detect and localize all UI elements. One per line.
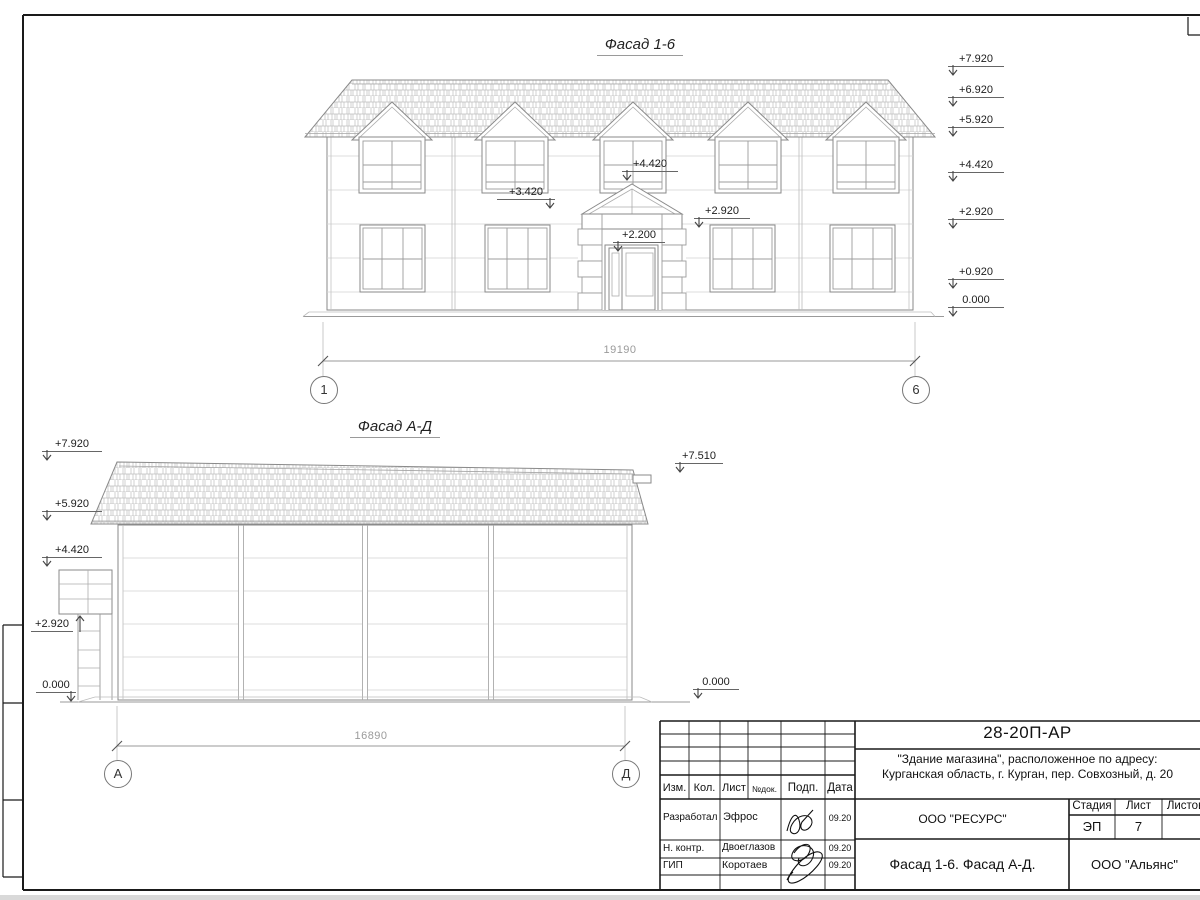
col-header-list: Лист	[720, 782, 748, 794]
col-header-data: Дата	[825, 782, 855, 794]
doc-number: 28-20П-АР	[856, 723, 1199, 743]
project-name-line2: Курганская область, г. Курган, пер. Совх…	[856, 767, 1199, 781]
col-header-ndok: №док.	[748, 784, 781, 794]
sheet-header: Лист	[1115, 800, 1162, 812]
facade-a-d-linework	[59, 462, 690, 760]
axis-bubble-1: 1	[310, 376, 338, 404]
elev-arrow-icon	[947, 126, 959, 138]
elev-mark: +5.920	[948, 114, 1004, 128]
elev-label: +2.920	[31, 618, 73, 632]
screen-edge	[0, 895, 1200, 900]
staff-name: Двоеглазов	[722, 842, 780, 853]
col-header-podp: Подп.	[781, 782, 825, 794]
dimension-19190: 19190	[560, 344, 680, 356]
axis-bubble-d: Д	[612, 760, 640, 788]
elev-mark: +7.510	[675, 450, 723, 464]
elev-mark: +2.200	[613, 229, 665, 243]
facade-a-d-title-text: Фасад А-Д	[350, 418, 440, 438]
axis-bubble-a: А	[104, 760, 132, 788]
elev-arrow-icon	[41, 510, 53, 522]
elev-arrow-icon	[947, 96, 959, 108]
elev-mark: +2.920	[31, 618, 73, 632]
elev-arrow-icon	[947, 65, 959, 77]
elev-mark: +4.420	[42, 544, 102, 558]
elev-arrow-icon	[947, 218, 959, 230]
sheet-number: 7	[1115, 815, 1162, 839]
signature-efros	[787, 810, 813, 834]
elev-arrow-icon	[621, 170, 633, 182]
axis-bubble-6: 6	[902, 376, 930, 404]
col-header-kol: Кол.	[689, 782, 720, 794]
contractor-org: ООО "Альянс"	[1069, 839, 1200, 890]
project-name-line1: "Здание магазина", расположенное по адре…	[856, 752, 1199, 766]
elev-arrow-icon	[41, 556, 53, 568]
elev-mark: +7.920	[42, 438, 102, 452]
elev-mark: +4.420	[948, 159, 1004, 173]
elev-arrow-icon	[544, 198, 556, 210]
staff-name: Коротаев	[722, 859, 780, 871]
staff-date: 09.20	[825, 843, 855, 853]
sheets-header: Листов	[1162, 800, 1200, 812]
elev-mark: +3.420	[497, 186, 555, 200]
stage-header: Стадия	[1069, 800, 1115, 812]
staff-role: Разработал	[663, 812, 719, 823]
facade-a-d-title: Фасад А-Д	[330, 418, 460, 435]
elev-mark: 0.000	[693, 676, 739, 690]
elev-mark: +6.920	[948, 84, 1004, 98]
facade-1-6-title: Фасад 1-6	[565, 36, 715, 53]
facade-1-6-linework	[303, 80, 944, 376]
elev-arrow-icon	[947, 171, 959, 183]
staff-role: ГИП	[663, 860, 719, 871]
col-header-izm: Изм.	[660, 782, 689, 794]
staff-role: Н. контр.	[663, 843, 719, 854]
elev-mark: 0.000	[948, 294, 1004, 308]
facade-1-6-title-text: Фасад 1-6	[597, 36, 683, 56]
elev-arrow-icon	[947, 278, 959, 290]
elev-arrow-icon	[692, 688, 704, 700]
signature-double	[787, 844, 822, 883]
sheet-title: Фасад 1-6. Фасад А-Д.	[856, 839, 1069, 890]
elev-arrow-icon	[41, 450, 53, 462]
elev-mark: +2.920	[948, 206, 1004, 220]
staff-date: 09.20	[825, 860, 855, 870]
dimension-16890: 16890	[321, 730, 421, 742]
stage-value: ЭП	[1069, 815, 1115, 839]
staff-date: 09.20	[825, 813, 855, 823]
elev-mark: +5.920	[42, 498, 102, 512]
elev-mark: +0.920	[948, 266, 1004, 280]
designer-org: ООО "РЕСУРС"	[856, 799, 1069, 839]
elev-mark: +2.920	[694, 205, 750, 219]
elev-arrow-icon	[674, 462, 686, 474]
elev-arrow-icon	[74, 613, 86, 632]
elev-mark: 0.000	[36, 679, 76, 693]
staff-name: Эфрос	[723, 811, 780, 823]
elev-arrow-icon	[947, 306, 959, 318]
elev-arrow-icon	[693, 217, 705, 229]
elev-mark: +7.920	[948, 53, 1004, 67]
elev-mark: +4.420	[622, 158, 678, 172]
elev-arrow-icon	[612, 241, 624, 253]
elev-arrow-icon	[65, 691, 77, 703]
signatures	[787, 810, 822, 883]
